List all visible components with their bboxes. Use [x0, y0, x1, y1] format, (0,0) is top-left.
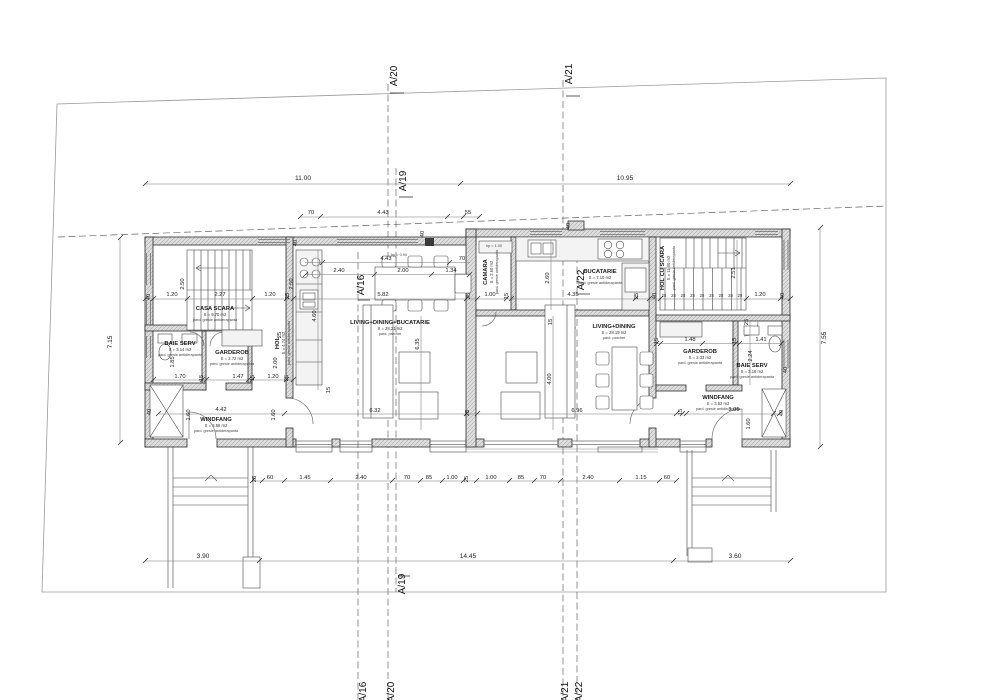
stove-burner — [300, 258, 308, 266]
dim: 25 — [634, 293, 640, 299]
floor-plan-drawing: A/20 A/19 A/21 A/16 A/22 A/19 A/16 A/20 … — [0, 0, 989, 700]
window-sill — [296, 447, 332, 452]
section-label-a16-mid: A/16 — [356, 274, 367, 295]
stove-burner — [312, 270, 320, 278]
dim: 1.41 — [755, 337, 766, 343]
dim: 2.00 — [273, 357, 279, 368]
wall-windfang-right-top-b — [706, 385, 742, 391]
dim: 4.42 — [215, 407, 226, 413]
dim: 55 — [465, 210, 471, 216]
wall-bottom-seg — [332, 439, 340, 447]
chair — [596, 352, 609, 365]
svg-text:pard. gresie antiderapanta: pard. gresie antiderapanta — [194, 429, 239, 433]
dim: 70 — [404, 475, 410, 481]
svg-text:S = 4.74 m2: S = 4.74 m2 — [281, 331, 286, 354]
dim: 2.27 — [214, 292, 225, 298]
dim: 28 — [719, 293, 724, 298]
dim: 1.60 — [271, 409, 277, 420]
dim: 1.00 — [485, 475, 496, 481]
dim: 40 — [779, 410, 785, 416]
dim: 25 — [466, 293, 472, 299]
dim: 25 — [252, 476, 258, 482]
dim: 15 — [732, 338, 738, 344]
dim: 14.45 — [460, 553, 477, 560]
chair — [640, 352, 653, 365]
dim: 28 — [738, 293, 743, 298]
chair — [434, 300, 448, 311]
dim: 4.43 — [380, 256, 391, 262]
wall-bottom-seg — [742, 439, 790, 447]
dim: 1.70 — [174, 374, 185, 380]
sink-bowl — [303, 302, 315, 307]
dim: 6.32 — [369, 408, 380, 414]
wall-bottom-seg — [372, 439, 430, 447]
svg-text:pard. gresie antiderapanta: pard. gresie antiderapanta — [210, 362, 255, 366]
dim: 4.43 — [377, 210, 388, 216]
svg-text:S = 2.72 m2: S = 2.72 m2 — [221, 356, 244, 361]
room-label-windfang-right: WINDFANG S = 3.52 m2 pard. gresie antide… — [696, 395, 741, 411]
dining-table — [612, 347, 637, 410]
flue-left — [425, 238, 434, 246]
dim: 1.85 — [170, 356, 176, 367]
sofa-seat — [399, 392, 438, 419]
dim: 2.60 — [545, 272, 551, 283]
window-bottom-3 — [430, 441, 466, 445]
dim: 70 — [308, 210, 314, 216]
svg-text:pard. gresie antiderapanta: pard. gresie antiderapanta — [193, 318, 238, 322]
floor-plan-page: A/20 A/19 A/21 A/16 A/22 A/19 A/16 A/20 … — [0, 0, 989, 700]
dim: 1.34 — [445, 268, 457, 274]
dim: 2.40 — [582, 475, 593, 481]
lavoar — [744, 326, 759, 335]
chair — [640, 396, 653, 409]
coffee-table — [399, 352, 430, 383]
dim: 1.60 — [746, 418, 752, 429]
chair — [408, 256, 422, 267]
wall-top-right-unit — [466, 229, 790, 237]
window-bottom-4 — [484, 441, 558, 445]
svg-text:S = 28.19 m2: S = 28.19 m2 — [601, 330, 627, 335]
stove-burner — [300, 270, 308, 278]
fridge — [625, 268, 646, 292]
dim: 11.00 — [295, 175, 311, 182]
room-label-windfang-left: WINDFANG S = 3.56 m2 pard. gresie antide… — [194, 417, 239, 433]
armchair — [455, 274, 471, 293]
dim: 25 — [465, 410, 471, 416]
wall-hol-scara-bottom — [656, 315, 790, 321]
dim: 4.00 — [547, 373, 553, 384]
svg-text:S = 9.70 m2: S = 9.70 m2 — [204, 312, 227, 317]
dim: 6.96 — [571, 408, 582, 414]
dim: 85 — [518, 475, 524, 481]
section-label-a22-bottom: A/22 — [574, 681, 585, 700]
dim: 1.48 — [684, 337, 695, 343]
dim: 3.90 — [197, 553, 210, 560]
svg-text:S = 3.16 m2: S = 3.16 m2 — [741, 369, 764, 374]
wall-windfang-right-top-a — [656, 385, 686, 391]
section-label-a21-top: A/21 — [564, 63, 575, 84]
dim: 28 — [709, 293, 714, 298]
dim: 6.35 — [415, 338, 421, 349]
room-label-living-right: LIVING+DINING S = 28.19 m2 pard. parchet — [593, 324, 636, 340]
stair-steps — [692, 478, 771, 505]
wall-bottom-seg — [558, 439, 572, 447]
dim: 1.20 — [267, 374, 278, 380]
dim: 15 — [548, 319, 554, 325]
stair-steps — [173, 478, 248, 505]
svg-text:S = 2.60 m2: S = 2.60 m2 — [489, 260, 494, 283]
section-label-a19-bottom: A/19 — [397, 573, 408, 594]
ticks — [298, 214, 482, 219]
svg-text:S = 28.21 m2: S = 28.21 m2 — [377, 326, 403, 331]
wall-bottom-seg — [217, 439, 296, 447]
wardrobe-garderob-left — [222, 330, 262, 346]
svg-text:pard. parchet: pard. parchet — [379, 332, 402, 336]
dim: 60 — [267, 475, 273, 481]
sink-bowl — [531, 243, 541, 254]
dim: 28 — [700, 293, 705, 298]
dim: 15 — [199, 375, 205, 381]
section-label-a19-top: A/19 — [398, 170, 409, 191]
stair-pillar — [688, 548, 712, 562]
dim: 40 — [146, 294, 152, 300]
dim: 40 — [420, 231, 426, 237]
dim: 40 — [293, 240, 299, 246]
room-label-camara: CAMARA S = 2.60 m2 pard. gresie antidera… — [483, 249, 499, 294]
dim: 1.00 — [484, 292, 495, 298]
chair — [596, 374, 609, 387]
stove-burner — [312, 258, 320, 266]
exterior-stair-left — [168, 447, 260, 588]
svg-text:pard. gresie antiderapanta: pard. gresie antiderapanta — [287, 320, 291, 365]
entrance-door-right — [712, 409, 742, 439]
window-sill — [680, 447, 706, 452]
window-sill — [430, 447, 466, 452]
section-label-a16-bottom: A/16 — [358, 681, 369, 700]
dim: 10.95 — [617, 175, 634, 182]
terrace-edge — [466, 449, 658, 452]
dim: 28 — [690, 293, 695, 298]
section-label-a20-bottom: A/20 — [386, 681, 397, 700]
dim: 28 — [728, 293, 733, 298]
dim: 15 — [654, 338, 660, 344]
dim: 1.47 — [232, 374, 243, 380]
window-sill — [598, 447, 642, 452]
svg-text:pard. gresie antiderapanta: pard. gresie antiderapanta — [158, 353, 203, 357]
dim: 2.51 — [731, 267, 737, 278]
dim: 60 — [664, 475, 670, 481]
wall-bottom-seg — [706, 439, 712, 447]
svg-text:pard. gresie antiderapanta: pard. gresie antiderapanta — [678, 361, 723, 365]
dim: 15 — [326, 387, 332, 393]
dim: 70 — [540, 475, 546, 481]
dim: 1.15 — [635, 475, 646, 481]
chair — [640, 374, 653, 387]
svg-text:S = 3.56 m2: S = 3.56 m2 — [205, 423, 228, 428]
ticks — [143, 181, 793, 186]
dim: 3.60 — [729, 553, 742, 560]
dim: 7.15 — [107, 335, 114, 348]
stair-pillar — [243, 557, 260, 588]
sink-bowl — [543, 243, 553, 254]
dim: 5.82 — [377, 292, 388, 298]
svg-text:pard. gresie antiderapanta: pard. gresie antiderapanta — [730, 375, 775, 379]
coffee-table — [506, 352, 537, 383]
dim: 1.20 — [754, 292, 765, 298]
window-bottom-6 — [680, 441, 706, 445]
wall-windfang-top-b — [226, 383, 252, 390]
wall-core-right-b — [649, 428, 656, 447]
dim: 25 — [285, 293, 291, 299]
wall-core-left-b — [286, 428, 293, 447]
stove-burner — [616, 241, 624, 249]
dim: 1.20 — [264, 292, 275, 298]
dim: 4.60 — [312, 310, 318, 321]
dim: 2.40 — [355, 475, 366, 481]
room-label-garderob-right: GARDEROB S = 2.33 m2 pard. gresie antide… — [678, 349, 723, 365]
wall-bottom-seg — [145, 439, 187, 447]
shaft-left — [150, 385, 183, 437]
wall-bottom-seg — [640, 439, 680, 447]
dim: 40 — [147, 409, 153, 415]
window-bottom-1 — [296, 441, 332, 445]
note-hp-100: hp = 1.00 — [486, 244, 502, 248]
dim: 1.60 — [186, 409, 192, 420]
dim: 2.50 — [289, 278, 295, 289]
dim: 25 — [284, 375, 290, 381]
wc-tank — [768, 326, 782, 335]
svg-text:pard. parchet: pard. parchet — [603, 336, 626, 340]
svg-text:pard. gresie antiderapanta: pard. gresie antiderapanta — [578, 281, 623, 285]
ticks — [118, 235, 123, 445]
dim: 2.40 — [333, 268, 344, 274]
dim: 15 — [504, 293, 510, 299]
dim: 2.50 — [180, 278, 186, 289]
sofa-seat — [501, 392, 540, 419]
door-hol-living-left — [287, 398, 313, 424]
svg-text:S = 3.14 m2: S = 3.14 m2 — [169, 347, 192, 352]
wall-core-left-a — [286, 237, 293, 398]
dim: 85 — [426, 475, 432, 481]
wc — [769, 336, 781, 352]
dim: 15 — [250, 375, 256, 381]
stove-burner — [604, 250, 612, 258]
dim: 40 — [566, 223, 572, 229]
dim: 1.45 — [299, 475, 310, 481]
dim: 7.55 — [821, 331, 828, 344]
chair — [408, 300, 422, 311]
stair-rails — [168, 447, 253, 588]
stove-burner — [616, 250, 624, 258]
chair — [596, 396, 609, 409]
dining-left — [375, 256, 471, 311]
note-hp-090: hp = 0.90 — [391, 253, 407, 257]
section-label-a21-bottom: A/21 — [560, 681, 571, 700]
dim: 40 — [652, 293, 658, 299]
dim: 25 — [464, 476, 470, 482]
dim: 28 — [681, 293, 686, 298]
dim: 25 — [744, 319, 750, 325]
stair-rails — [687, 450, 776, 556]
stove-burner — [604, 241, 612, 249]
svg-text:S = 3.52 m2: S = 3.52 m2 — [707, 401, 730, 406]
svg-text:S = 11.00 m2: S = 11.00 m2 — [666, 255, 671, 280]
window-sill — [340, 447, 372, 452]
dim: 4.35 — [567, 292, 578, 298]
window-bottom-5 — [572, 441, 640, 445]
dim: 70 — [459, 256, 465, 262]
section-label-a20-top: A/20 — [389, 65, 400, 86]
dim: 1.00 — [446, 475, 457, 481]
window-bottom-2 — [340, 441, 372, 445]
exterior-stair-right — [687, 450, 776, 562]
wardrobe-garderob-right — [660, 322, 702, 337]
dim: 2.00 — [397, 268, 408, 274]
svg-text:pard. gresie antiderapanta: pard. gresie antiderapanta — [495, 249, 499, 294]
chair — [434, 256, 448, 267]
dim: 40 — [783, 367, 789, 373]
dim: 2.24 — [748, 350, 754, 362]
svg-text:pard. gresie antiderapanta: pard. gresie antiderapanta — [696, 407, 741, 411]
dim: 15 — [678, 409, 684, 415]
dim: 1.20 — [166, 292, 177, 298]
svg-text:pard. gresie antiderapanta: pard. gresie antiderapanta — [672, 245, 676, 290]
dim: 40 — [780, 293, 786, 299]
dim: 28 — [662, 293, 667, 298]
room-label-living-left: LIVING+DINING+BUCATARIE S = 28.21 m2 par… — [350, 320, 430, 336]
dining-right — [596, 347, 653, 410]
svg-text:S = 7.10 m2: S = 7.10 m2 — [589, 275, 612, 280]
sofa-right — [501, 305, 575, 419]
dim: 28 — [671, 293, 676, 298]
svg-text:S = 2.33 m2: S = 2.33 m2 — [689, 355, 712, 360]
